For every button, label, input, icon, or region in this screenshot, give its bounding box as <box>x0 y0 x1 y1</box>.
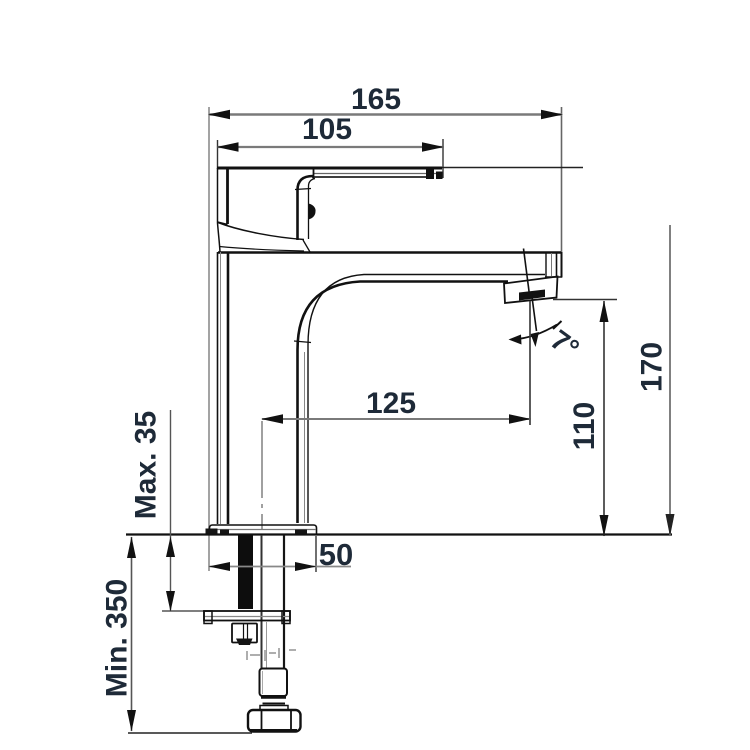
svg-text:7°: 7° <box>545 324 585 365</box>
svg-text:125: 125 <box>366 387 416 420</box>
svg-text:165: 165 <box>351 83 401 116</box>
svg-text:Max. 35: Max. 35 <box>130 411 163 519</box>
svg-text:170: 170 <box>636 342 669 392</box>
svg-text:50: 50 <box>319 537 353 572</box>
svg-text:105: 105 <box>302 113 352 146</box>
svg-text:Min. 350: Min. 350 <box>101 579 134 697</box>
svg-text:110: 110 <box>568 402 601 450</box>
